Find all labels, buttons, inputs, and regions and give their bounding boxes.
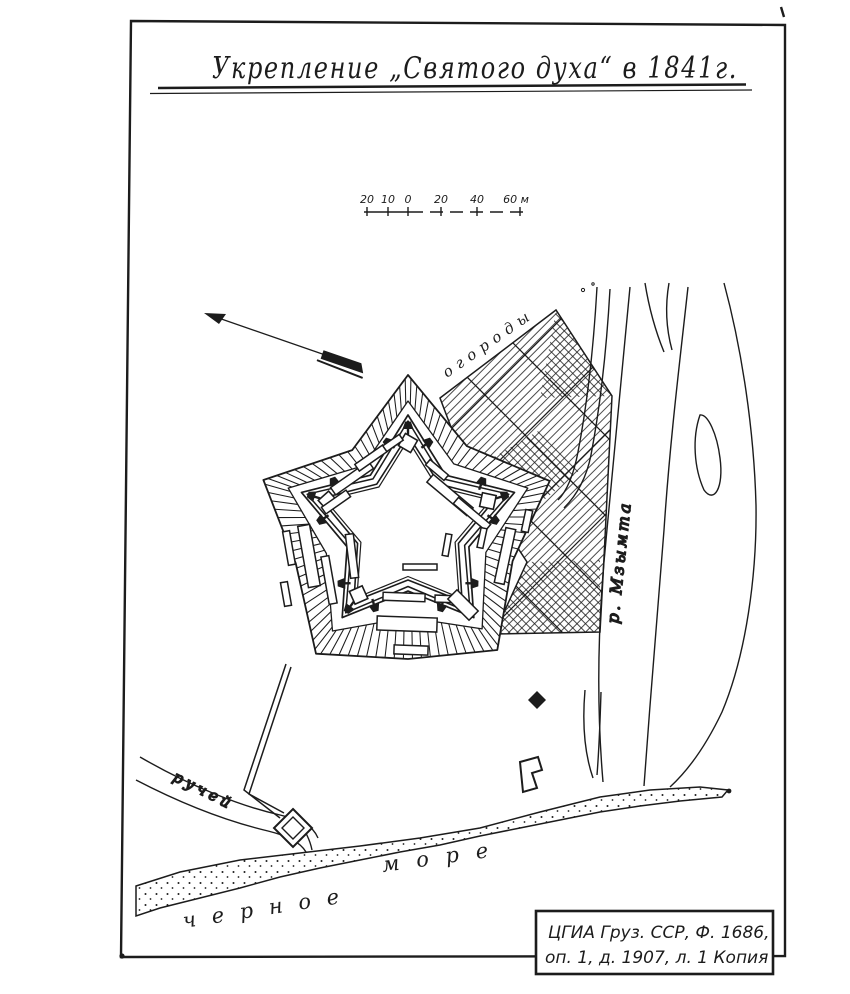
river-branch <box>667 283 672 350</box>
river-bank <box>644 287 688 786</box>
garden-dot <box>592 283 594 285</box>
river-branch <box>584 690 593 778</box>
map-canvas: Укрепление „Святого духа“ в 1841г. 20 10… <box>0 0 850 994</box>
stream-label: ручей <box>170 768 237 814</box>
map-title: Укрепление „Святого духа“ в 1841г. <box>212 51 738 86</box>
fort-building <box>394 645 428 655</box>
river-island <box>695 415 721 495</box>
river-branch <box>645 283 664 352</box>
fort-building <box>377 616 437 632</box>
river-bank <box>670 283 756 787</box>
scale-label-1: 10 <box>381 193 395 206</box>
scale-label-3: 20 <box>434 193 448 206</box>
scale-label-0: 20 <box>360 193 374 206</box>
black-diamond-building <box>528 691 546 709</box>
scan-artifact-mark <box>781 7 784 17</box>
l-shaped-building <box>520 757 542 792</box>
scale-bar: 20 10 0 20 40 60 м <box>360 193 529 216</box>
fort-building <box>280 582 291 607</box>
fort-building <box>403 564 437 570</box>
scale-label-2: 0 <box>405 193 412 206</box>
spit-tip <box>727 789 732 794</box>
bastion-post <box>480 493 497 510</box>
stamp-line1: ЦГИА Груз. ССР, Ф. 1686, <box>548 923 770 943</box>
path-to-sea <box>244 664 291 818</box>
map-page: Укрепление „Святого духа“ в 1841г. 20 10… <box>0 0 850 994</box>
frame-corner-mark <box>119 953 124 958</box>
fort-building <box>383 592 425 601</box>
scale-label-5: 60 м <box>503 193 529 206</box>
garden-dot <box>581 288 584 291</box>
archive-stamp: ЦГИА Груз. ССР, Ф. 1686, оп. 1, д. 1907,… <box>536 911 773 974</box>
north-arrow-icon <box>204 313 367 378</box>
title-underline-2 <box>150 90 752 94</box>
stamp-line2: оп. 1, д. 1907, л. 1 Копия <box>545 948 768 968</box>
scale-label-4: 40 <box>470 193 484 206</box>
